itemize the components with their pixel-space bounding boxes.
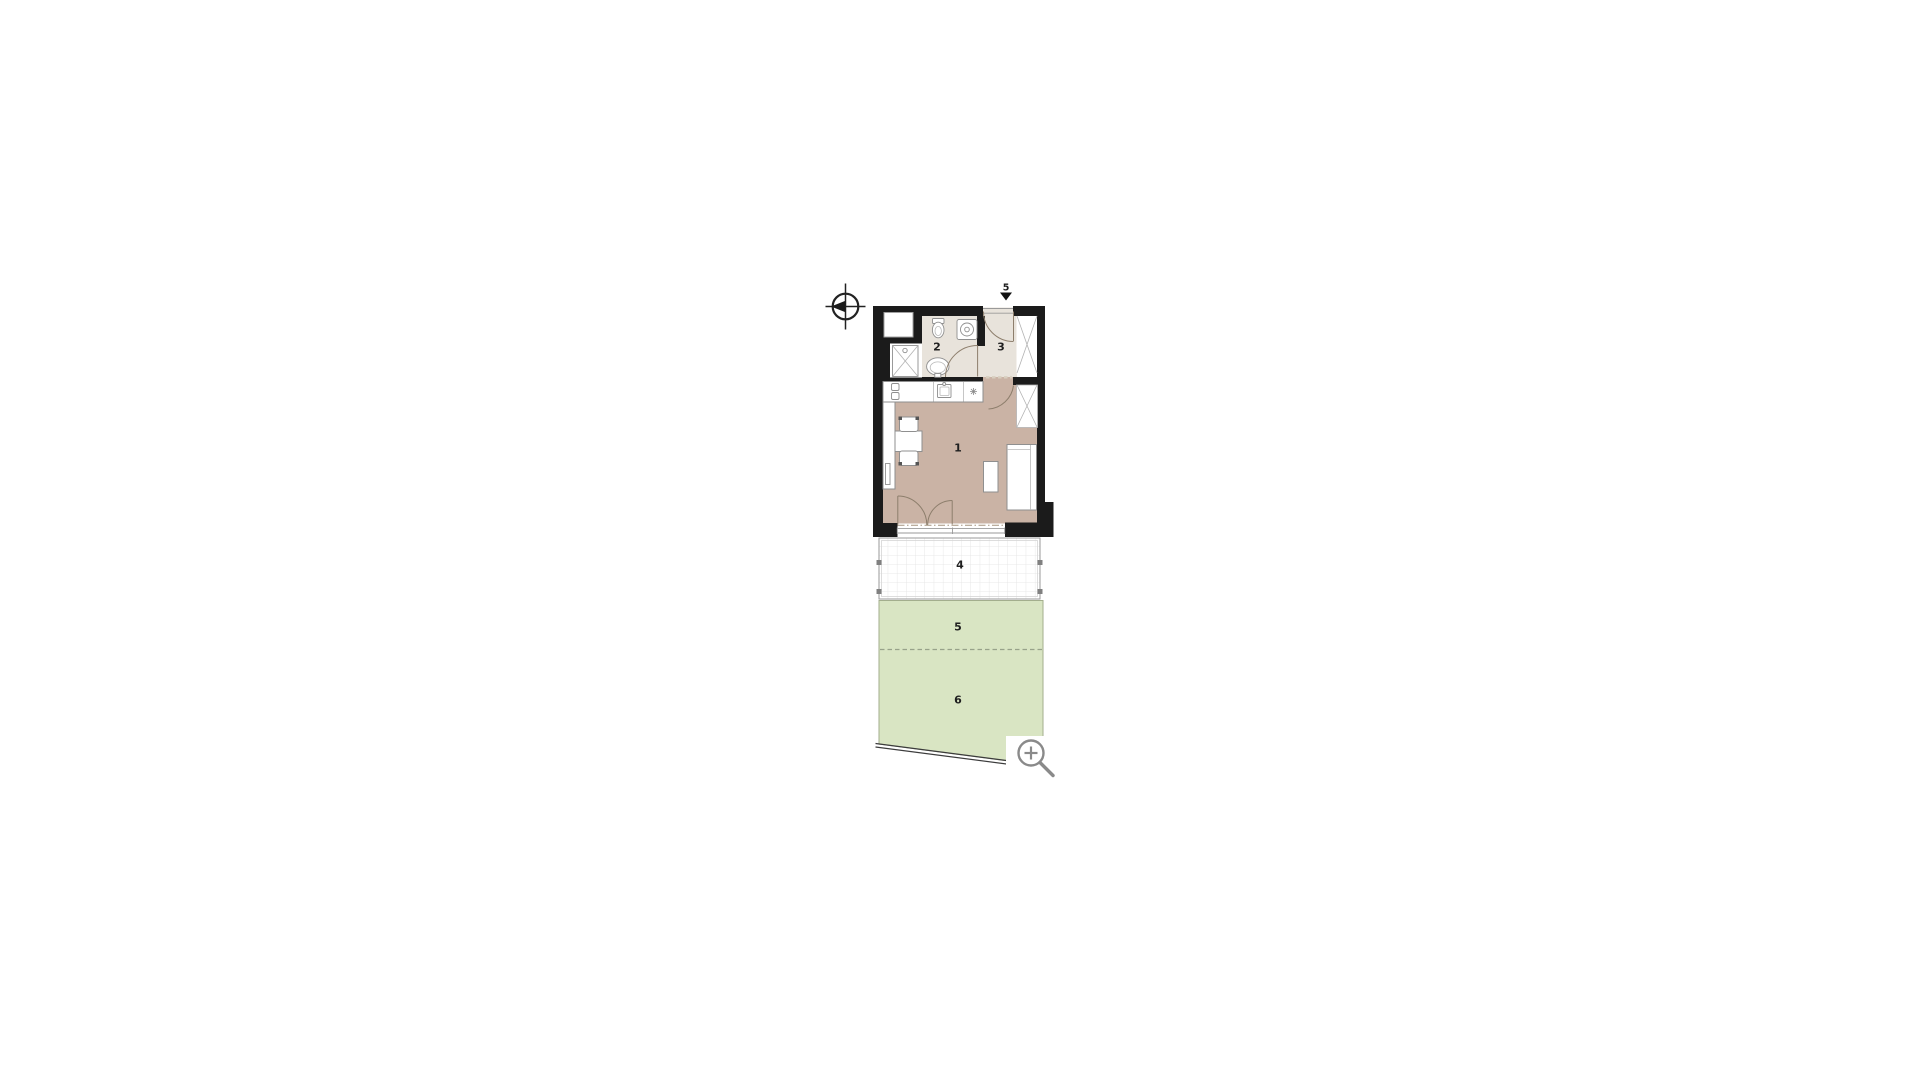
section-marker-label: 5 xyxy=(1003,283,1010,293)
magnifier-icon xyxy=(1006,736,1058,779)
room-label-terrace: 4 xyxy=(956,560,964,571)
section-marker-arrow xyxy=(1000,293,1012,301)
kitchen-counter xyxy=(883,382,983,403)
north-arrow-icon xyxy=(826,284,866,330)
room-label-bathroom: 2 xyxy=(933,342,941,353)
room-label-entry-hall: 3 xyxy=(997,342,1005,353)
room-label-garden-front: 5 xyxy=(954,622,962,633)
floor-plan-canvas: 1 2 3 4 5 6 5 xyxy=(0,0,1920,1080)
zoom-button[interactable] xyxy=(1006,736,1058,779)
floor-plan-graphic xyxy=(0,0,1920,1080)
room-label-main-room: 1 xyxy=(954,443,962,454)
room-label-garden-back: 6 xyxy=(954,695,962,706)
